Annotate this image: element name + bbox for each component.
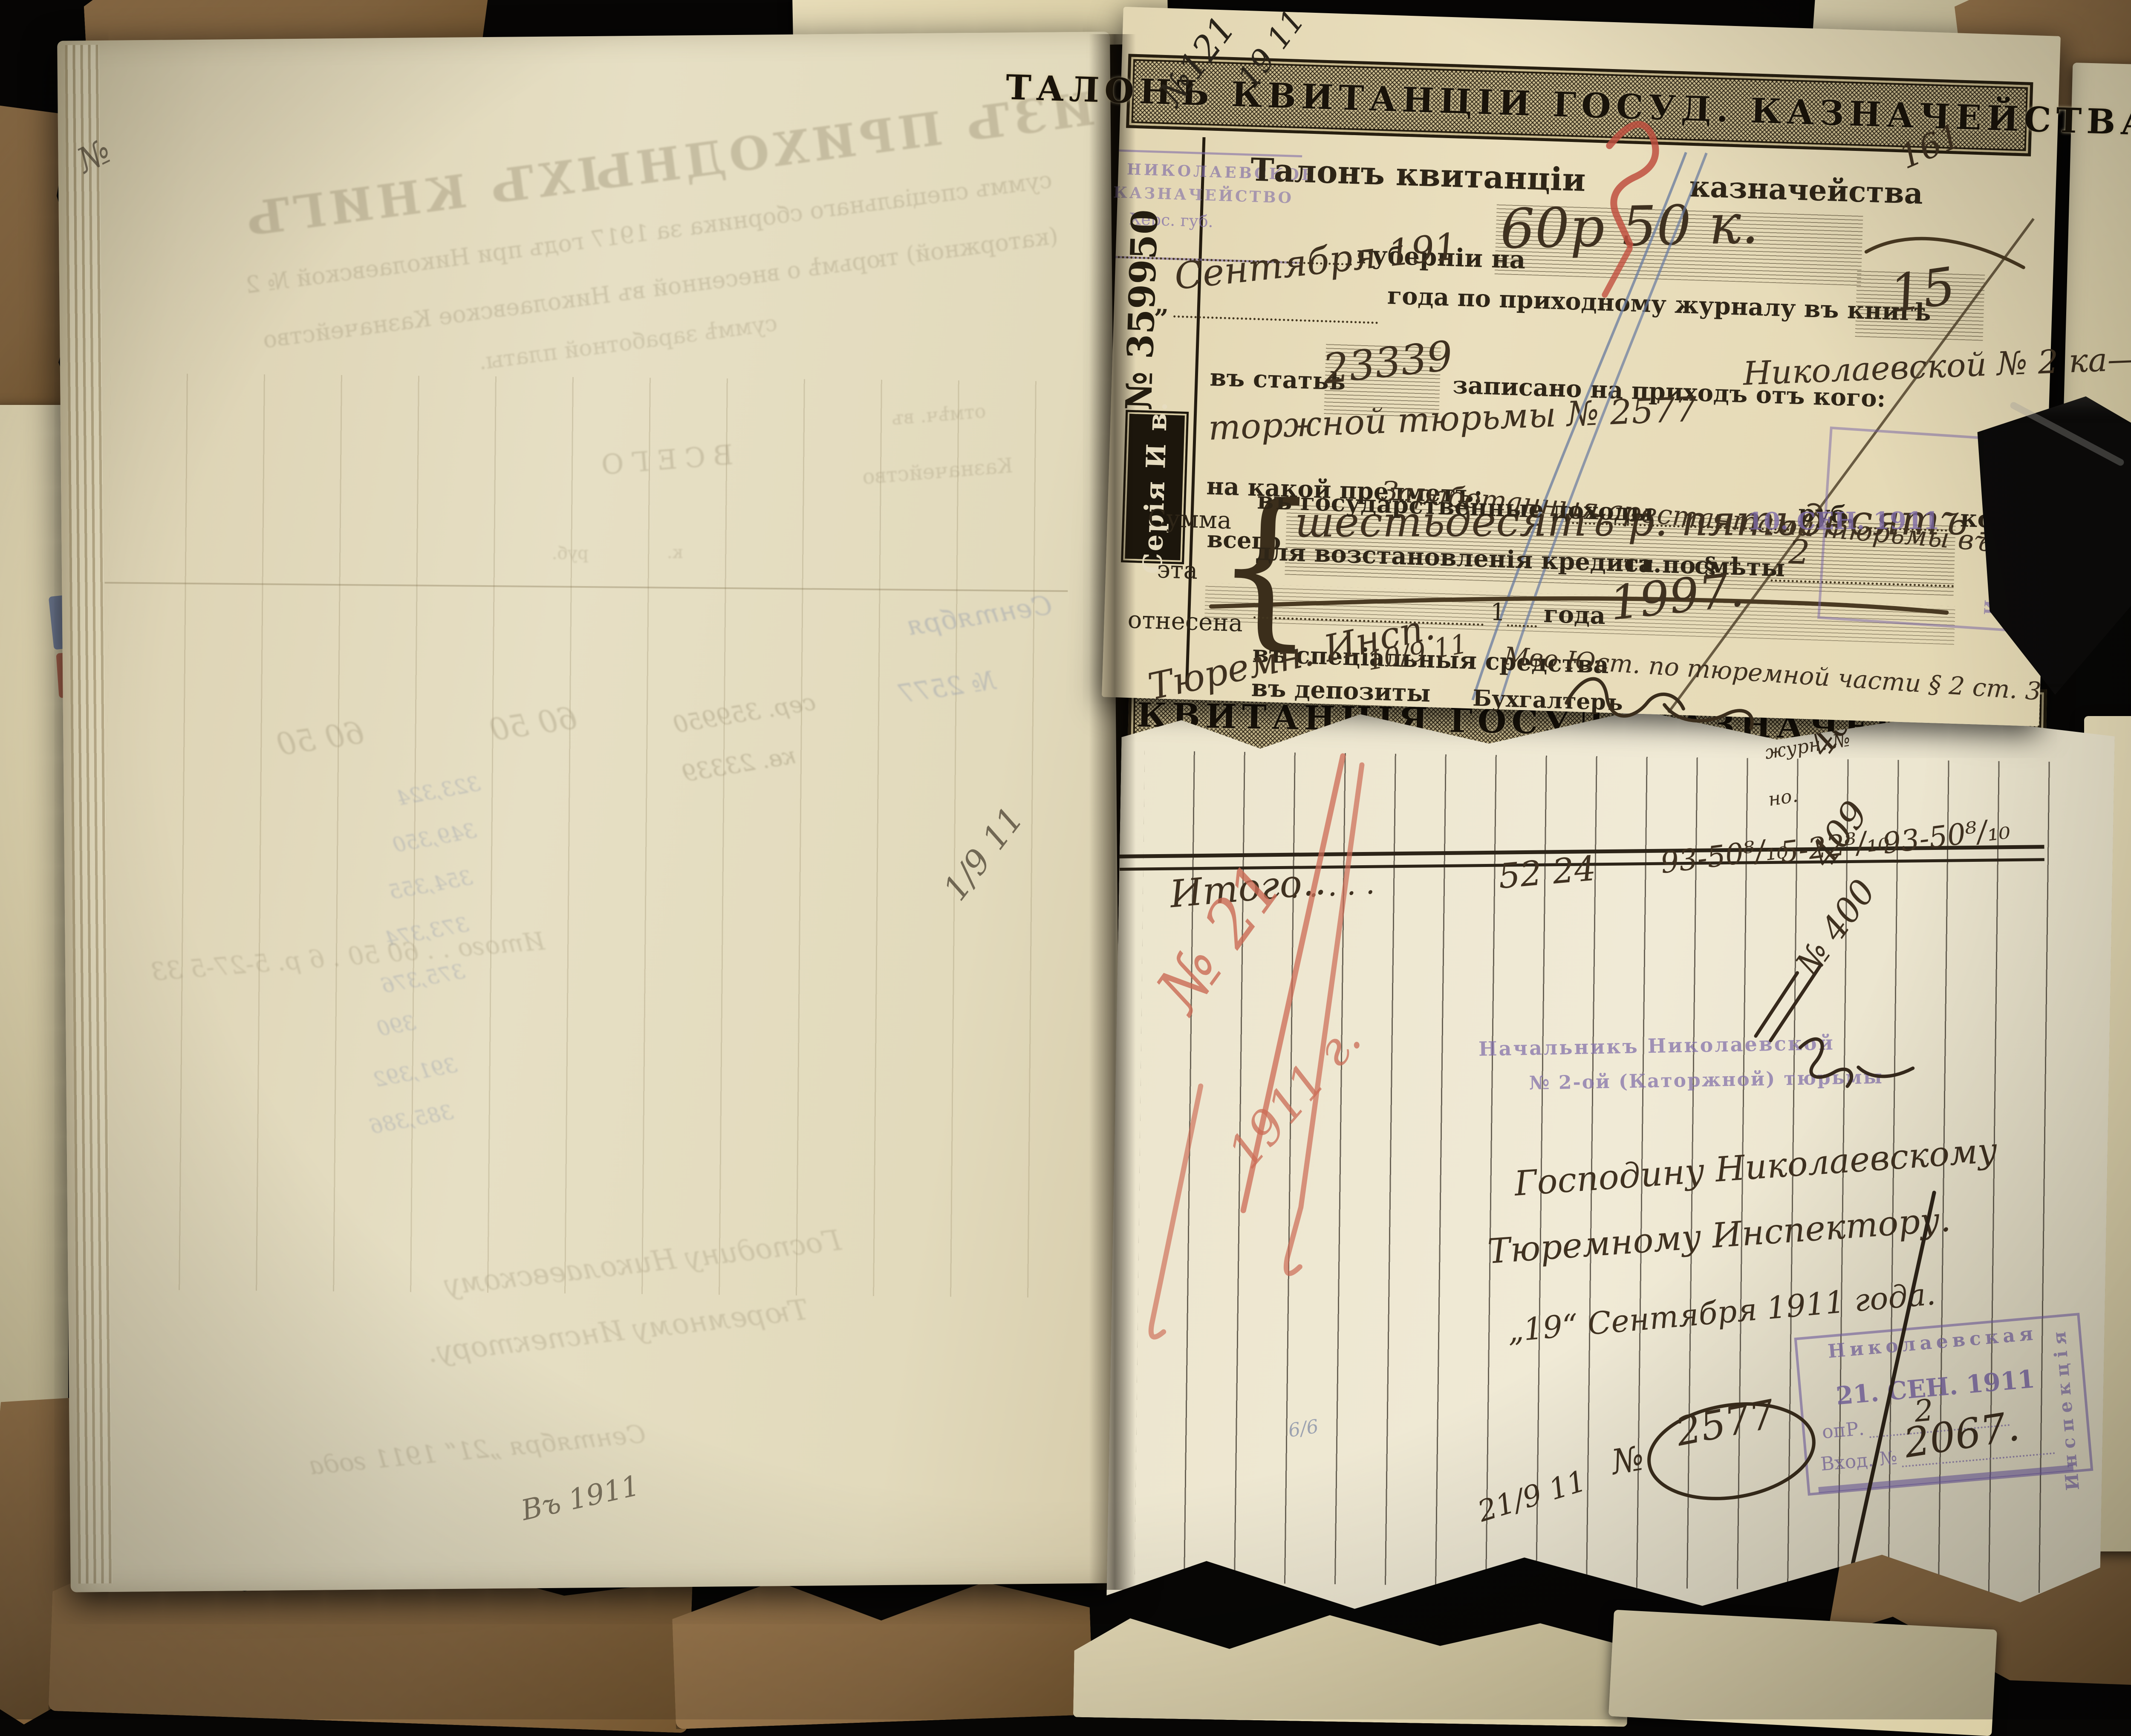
- receipt-sheet: журн. № но. 408 409 № 400 Итого.. . . . …: [1106, 701, 2115, 1622]
- paper-edge-left: [0, 405, 68, 1470]
- bleed-address-2: Тюремному Инспектору.: [426, 1293, 810, 1369]
- bleed-table-grid: [103, 373, 1074, 1298]
- bleed-subtitle-3: суммѣ заработной платы.: [477, 310, 779, 375]
- page-gutter-shadow: [1089, 34, 1136, 1590]
- talon-sum-block: Сумма эта отнесена { въ государственные …: [1102, 7, 2061, 726]
- bleed-date-line: Сентября „21“ 1911 года: [308, 1419, 647, 1481]
- receipt-ink-strokes: [1106, 701, 2115, 1622]
- bleed-unit-rub: руб.: [552, 543, 589, 563]
- left-page: ВЫПИСКА ИЗЪ ПРИХОДНЫХЪ КНИГЪ суммъ спеці…: [57, 32, 1123, 1592]
- accountant-signature: [1102, 7, 2061, 726]
- kraft-scrap-bottom-2: [671, 1570, 1093, 1729]
- sheet-stack-edges: [65, 45, 112, 1584]
- bleed-unit-kop: к.: [667, 543, 683, 562]
- pencil-note-bottom: Въ 1911: [518, 1469, 642, 1527]
- receipt-page: КВИТАНЦІЯ ГОСУД. КАЗНАЧЕЙСТВА журн. № но…: [1106, 654, 2120, 1635]
